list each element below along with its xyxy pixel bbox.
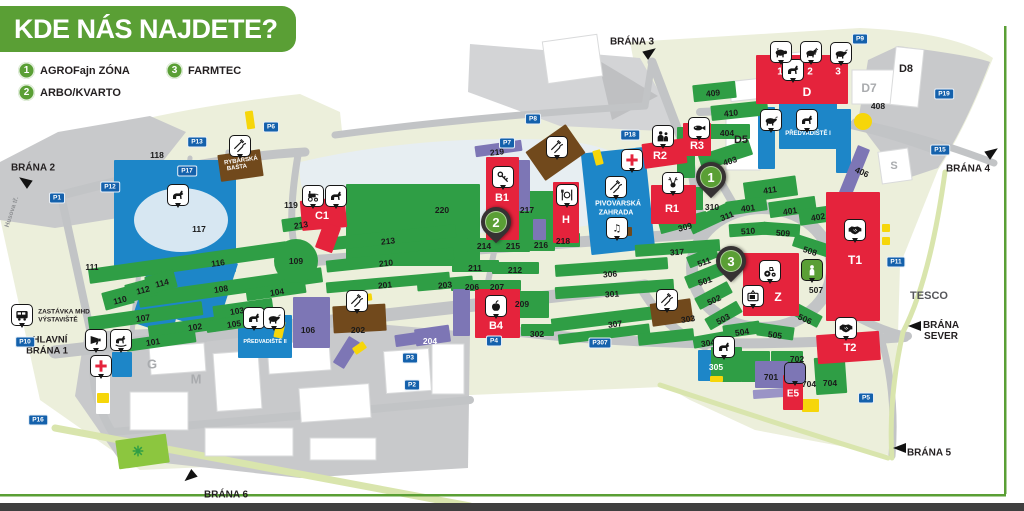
plot-label-307: 307 [607, 318, 622, 330]
plot-label-117: 117 [192, 224, 206, 234]
meal-icon [556, 184, 578, 206]
parking-sign-p16: P16 [28, 415, 48, 426]
plot-label-701: 701 [764, 372, 778, 382]
blue-strip [836, 109, 851, 173]
plot-label-401: 401 [782, 205, 797, 217]
location-pin-number: 3 [720, 250, 742, 272]
parking-sign-p11: P11 [886, 257, 905, 268]
parking-sign-p7: P7 [499, 138, 515, 149]
pin-purple-icon [784, 362, 806, 384]
purple-block [453, 289, 470, 336]
building-label-G: G [147, 357, 157, 372]
legend-label: FARMTEC [188, 65, 241, 77]
plot-label-408: 408 [871, 101, 885, 111]
location-pin-number: 2 [485, 211, 507, 233]
hall-label-B1: B1 [495, 192, 509, 204]
yellow-block [802, 399, 819, 412]
plot-label-101: 101 [145, 336, 160, 348]
firstaid-icon [90, 355, 112, 377]
plot-label-305: 305 [709, 362, 723, 372]
purple-block [533, 219, 546, 240]
plot-label-704: 704 [823, 378, 837, 388]
key-icon [492, 166, 514, 188]
gate-label-brána-3: BRÁNA 3 [610, 37, 654, 48]
plot-label-201: 201 [377, 279, 392, 290]
building-label-M: M [191, 372, 202, 387]
plot-label-302: 302 [530, 329, 544, 339]
map-page: KDE NÁS NAJDETE? 1 AGROFajn ZÓNA 2 ARBO/… [0, 0, 1024, 511]
suit-icon [652, 125, 674, 147]
hall-label-2: 2 [807, 67, 813, 78]
plot-label-211: 211 [468, 263, 482, 273]
parking-sign-p19: P19 [934, 89, 954, 100]
parking-sign-p1: P1 [49, 193, 65, 204]
parking-sign-p15: P15 [930, 145, 950, 156]
parking-sign-p10: P10 [15, 337, 35, 348]
hall-label-H: H [562, 214, 570, 226]
hall-label-Z: Z [774, 290, 781, 304]
deer-icon [662, 172, 684, 194]
carriage-icon [302, 185, 324, 207]
plot-label-204: 204 [423, 336, 437, 346]
plot-label-220: 220 [435, 205, 449, 215]
page-title: KDE NÁS NAJDETE? [0, 6, 296, 52]
legend-label: ARBO/KVARTO [40, 87, 121, 99]
plot-label-105: 105 [226, 318, 241, 330]
plot-label-215: 215 [506, 241, 520, 251]
gate-arrow-icon [984, 144, 1000, 160]
plot-label-301: 301 [605, 289, 620, 300]
utensils-icon [656, 289, 678, 311]
plot-label-218: 218 [556, 236, 570, 246]
handshake-icon [844, 219, 866, 241]
plot-label-317: 317 [670, 247, 685, 258]
gate-arrow-icon [181, 469, 197, 485]
area-label: ZASTÁVKA MHD [38, 309, 90, 316]
plot-label-213: 213 [293, 219, 308, 231]
hall-label-E5: E5 [787, 389, 799, 400]
building-label-D7: D7 [861, 81, 876, 95]
plot-label-410: 410 [723, 107, 738, 118]
plot-label-310: 310 [705, 202, 719, 212]
parking-sign-p2: P2 [404, 380, 420, 391]
pig-icon [770, 41, 792, 63]
plot-label-104: 104 [269, 286, 284, 298]
gate-label-brána-6: BRÁNA 6 [204, 490, 248, 501]
area-label: VÝSTAVIŠTĚ [38, 317, 78, 324]
plot-label-214: 214 [477, 241, 491, 251]
yellow-block [710, 376, 723, 382]
firstaid-icon [621, 149, 643, 171]
building-label-D8: D8 [899, 63, 913, 75]
parking-sign-p3: P3 [402, 353, 418, 364]
parking-sign-p9: P9 [852, 34, 868, 45]
plot-label-111: 111 [85, 262, 98, 272]
plot-label-207: 207 [490, 282, 504, 292]
plot-label-409: 409 [705, 87, 720, 98]
parking-sign-p6: P6 [263, 122, 279, 133]
plot-label-203: 203 [437, 279, 452, 290]
gate-label-brána-4: BRÁNA 4 [946, 164, 990, 175]
gate-arrow-icon [16, 173, 32, 189]
horse-icon [167, 184, 189, 206]
building-label-D5: D5 [734, 134, 748, 146]
apple-icon [485, 295, 507, 317]
gate-arrow-icon [908, 321, 921, 331]
plot-label-309: 309 [677, 220, 693, 233]
plot-label-119: 119 [284, 200, 298, 210]
yellow-block [854, 113, 872, 130]
plot-label-108: 108 [213, 283, 228, 295]
hall-label-T1: T1 [848, 253, 862, 267]
legend-item-farmtec: 3 FARMTEC [166, 62, 241, 79]
tractor-icon [759, 260, 781, 282]
area-label: Husova tř. [4, 196, 20, 228]
plot-label-216: 216 [534, 240, 548, 250]
plot-label-116: 116 [211, 257, 226, 269]
gate-label-brána-sever: BRÁNASEVER [923, 320, 959, 342]
legend-number-badge: 1 [18, 62, 35, 79]
parking-sign-p8: P8 [525, 114, 541, 125]
tv-icon [742, 285, 764, 307]
hall-label-C1: C1 [315, 210, 329, 222]
legend-label: AGROFajn ZÓNA [40, 65, 130, 77]
parking-sign-p13: P13 [187, 137, 207, 148]
legend-number-badge: 2 [18, 84, 35, 101]
plot-label-401: 401 [740, 202, 755, 213]
utensils-icon [605, 176, 627, 198]
plot-label-404: 404 [720, 128, 734, 138]
goat-icon [800, 41, 822, 63]
parking-sign-p307: P307 [588, 338, 611, 349]
plot-label-411: 411 [763, 184, 778, 196]
music-icon: ♫ [606, 217, 628, 239]
plot-label-202: 202 [351, 325, 365, 335]
parking-sign-p4: P4 [486, 336, 502, 347]
parking-sign-p17: P17 [177, 166, 197, 177]
plot-label-210: 210 [378, 257, 393, 268]
fish-icon [688, 117, 710, 139]
cow-icon [830, 42, 852, 64]
plot-label-118: 118 [150, 150, 164, 160]
parking-sign-p18: P18 [620, 130, 640, 141]
person-green-icon [801, 259, 823, 281]
horse-icon [243, 307, 265, 329]
building-label-S: S [890, 160, 897, 172]
parking-sign-p12: P12 [100, 182, 120, 193]
hall-label-R1: R1 [665, 203, 679, 215]
map-overlay: 1011021031041051061071081091101111121141… [0, 0, 1024, 511]
yellow-block [882, 237, 890, 245]
plot-label-505: 505 [767, 329, 782, 341]
plot-label-504: 504 [734, 326, 749, 338]
area-label: HLAVNÍ [33, 335, 68, 346]
megaphone-icon [85, 329, 107, 351]
plot-label-107: 107 [135, 312, 150, 324]
plot-label-306: 306 [603, 269, 618, 280]
gate-arrow-icon [893, 443, 906, 453]
area-label: TESCO [910, 290, 948, 302]
plot-label-213: 213 [380, 235, 395, 246]
gate-label-brána-2: BRÁNA 2 [11, 163, 55, 174]
yellow-block [882, 224, 890, 232]
cow-icon [263, 307, 285, 329]
horse-icon [325, 185, 347, 207]
horse-icon [713, 336, 735, 358]
purple-block [753, 388, 785, 399]
plot-label-507: 507 [809, 285, 823, 295]
svg-text:♫: ♫ [613, 224, 622, 235]
plot-label-209: 209 [515, 299, 529, 309]
plot-label-509: 509 [776, 228, 791, 239]
plot-label-303: 303 [680, 313, 695, 325]
legend-item-arbo-kvarto: 2 ARBO/KVARTO [18, 84, 121, 101]
location-pin-number: 1 [700, 166, 722, 188]
plot-106 [293, 297, 330, 348]
parking-sign-p5: P5 [858, 393, 874, 404]
handshake-icon [835, 317, 857, 339]
plot-label-217: 217 [520, 205, 534, 215]
utensils-icon [229, 135, 251, 157]
sparkle-icon [127, 440, 149, 462]
plot-label-510: 510 [741, 226, 756, 237]
plot-label-109: 109 [289, 256, 303, 266]
bus-icon [11, 304, 33, 326]
plot-label-206: 206 [465, 282, 479, 292]
area-label: ZAHRADA [599, 210, 634, 217]
plot-label-102: 102 [187, 321, 202, 333]
gate-label-brána-5: BRÁNA 5 [907, 448, 951, 459]
legend-item-agrofajn: 1 AGROFajn ZÓNA [18, 62, 130, 79]
rockinghorse-icon [110, 329, 132, 351]
legend-number-badge: 3 [166, 62, 183, 79]
area-label: PŘEDVADIŠTĚ II [243, 339, 286, 345]
yellow-block [97, 393, 109, 403]
cow-icon [760, 109, 782, 131]
yellow-block [245, 111, 255, 130]
hall-label-D: D [803, 85, 812, 99]
plot-label-106: 106 [301, 325, 315, 335]
plot-label-212: 212 [508, 265, 522, 275]
horse-icon [796, 109, 818, 131]
utensils-icon [546, 136, 568, 158]
utensils-icon [346, 290, 368, 312]
